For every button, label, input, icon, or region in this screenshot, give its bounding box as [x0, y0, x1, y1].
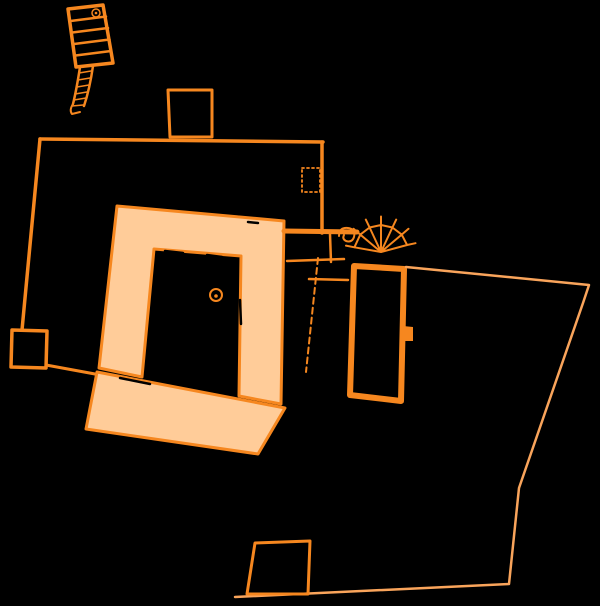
architectural-site-plan	[0, 0, 600, 606]
dotted-chamber	[302, 168, 320, 192]
enclosure-left-wall	[22, 139, 40, 330]
site-plan-canvas	[0, 0, 600, 606]
enclosure-top-wall	[40, 139, 323, 142]
stair-turret-symbol-dot	[95, 12, 98, 15]
gate-tower	[168, 90, 212, 137]
great-hall	[350, 266, 404, 401]
west-annex	[11, 330, 47, 368]
well-symbol-dot	[214, 294, 218, 298]
cloister-ranges	[99, 206, 284, 404]
inner-wall-dashed	[306, 258, 318, 372]
precinct-boundary	[235, 267, 589, 597]
courtyard-link-mid	[287, 259, 344, 261]
stair-building-outline	[68, 5, 113, 67]
courtyard-link-upper	[284, 231, 357, 232]
hall-buttress	[403, 326, 413, 341]
courtyard-link-vertical	[330, 234, 331, 262]
south-building	[247, 541, 310, 594]
